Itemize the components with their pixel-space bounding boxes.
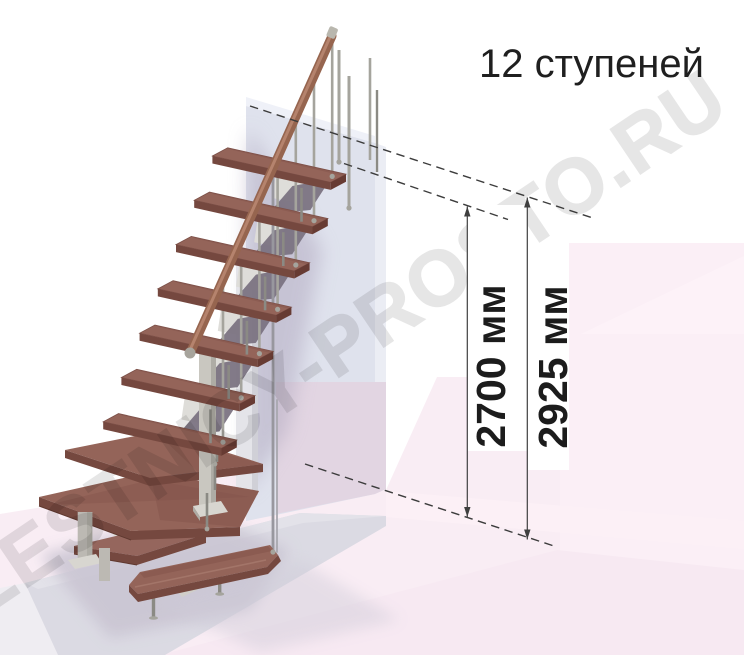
svg-text:2700 мм: 2700 мм xyxy=(468,284,514,447)
svg-text:2925 мм: 2925 мм xyxy=(530,285,576,448)
svg-text:12 ступеней: 12 ступеней xyxy=(479,42,704,86)
